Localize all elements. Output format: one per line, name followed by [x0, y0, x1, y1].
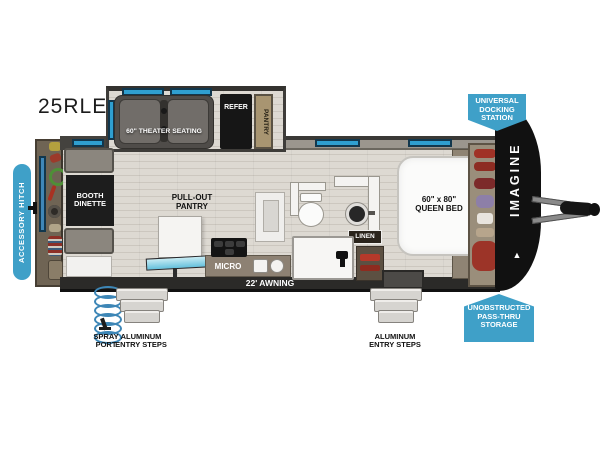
theater-seat-cushion — [167, 99, 209, 144]
dinette-bench — [64, 148, 114, 173]
entry-steps-label: ALUMINUM ENTRY STEPS — [360, 333, 430, 350]
kitchen-sink-square — [253, 259, 268, 273]
theater-seat-cushion — [119, 99, 161, 144]
bath-sink-bowl — [346, 203, 368, 225]
theater-center-console — [160, 100, 168, 142]
micro-label: MICRO — [206, 263, 250, 272]
pull-out-pantry-cabinet — [158, 216, 202, 258]
theater-seating-label: 60" THEATER SEATING — [112, 128, 216, 135]
window — [315, 139, 360, 147]
floorplan-canvas: 25RLE ACCESSORY HITCH 22' AWNING 60" THE… — [0, 0, 600, 450]
hitch-icon — [33, 202, 37, 214]
awning-label: 22' AWNING — [240, 279, 300, 288]
pantry-label: PANTRY — [254, 94, 273, 149]
kitchen-sink-round — [270, 259, 284, 273]
booth-dinette-label: BOOTH DINETTE — [66, 192, 114, 209]
storage-item — [48, 236, 62, 256]
brand-label: IMAGINE — [498, 115, 532, 245]
wardrobe-item — [474, 178, 496, 189]
fireplace-cabinet — [356, 246, 384, 281]
bath-faucet — [368, 211, 375, 215]
towel-hook-icon — [340, 257, 345, 267]
fireplace-glow — [360, 254, 380, 261]
window — [72, 139, 104, 147]
cabinet-panel — [263, 200, 279, 232]
stove — [211, 238, 247, 257]
toilet — [298, 202, 324, 227]
cupholder-icon — [161, 108, 167, 114]
refer-label: REFER — [220, 104, 252, 112]
burner-icon — [214, 241, 223, 247]
entry-steps — [114, 288, 168, 326]
tongue-jack-wheel — [589, 203, 600, 216]
wardrobe-item — [476, 228, 494, 237]
wardrobe-item — [477, 213, 493, 224]
toilet-tank — [300, 193, 322, 202]
wardrobe-item — [474, 162, 496, 171]
entry-door-landing — [382, 270, 424, 289]
pull-out-pantry-label: PULL-OUT PANTRY — [156, 194, 228, 212]
window — [408, 139, 452, 147]
step-tread — [378, 310, 414, 323]
refrigerator — [220, 94, 252, 149]
step-tread — [124, 310, 160, 323]
storage-item — [49, 224, 61, 232]
wardrobe-item — [476, 195, 494, 208]
entry-steps-label: ALUMINUM ENTRY STEPS — [106, 333, 176, 350]
counter-leg — [173, 268, 177, 278]
bath-vanity — [368, 176, 380, 234]
callout-pass-thru-storage: UNOBSTRUCTED PASS-THRU STORAGE — [464, 294, 534, 342]
brand-logo-icon: ▲ — [510, 250, 524, 262]
wardrobe-item — [474, 149, 496, 158]
entry-steps — [368, 288, 422, 326]
burner-icon — [225, 241, 234, 247]
fireplace-glow — [360, 265, 380, 271]
burner-icon — [225, 249, 234, 255]
gear-icon — [48, 205, 61, 218]
accessory-hitch-label: ACCESSORY HITCH — [13, 164, 31, 280]
callout-accessory-hitch: ACCESSORY HITCH — [13, 164, 31, 280]
burner-icon — [236, 241, 245, 247]
rear-window — [39, 156, 46, 232]
dinette-bench — [64, 228, 114, 254]
spray-nozzle-icon — [99, 327, 111, 330]
dinette-base-cabinet — [66, 256, 112, 277]
